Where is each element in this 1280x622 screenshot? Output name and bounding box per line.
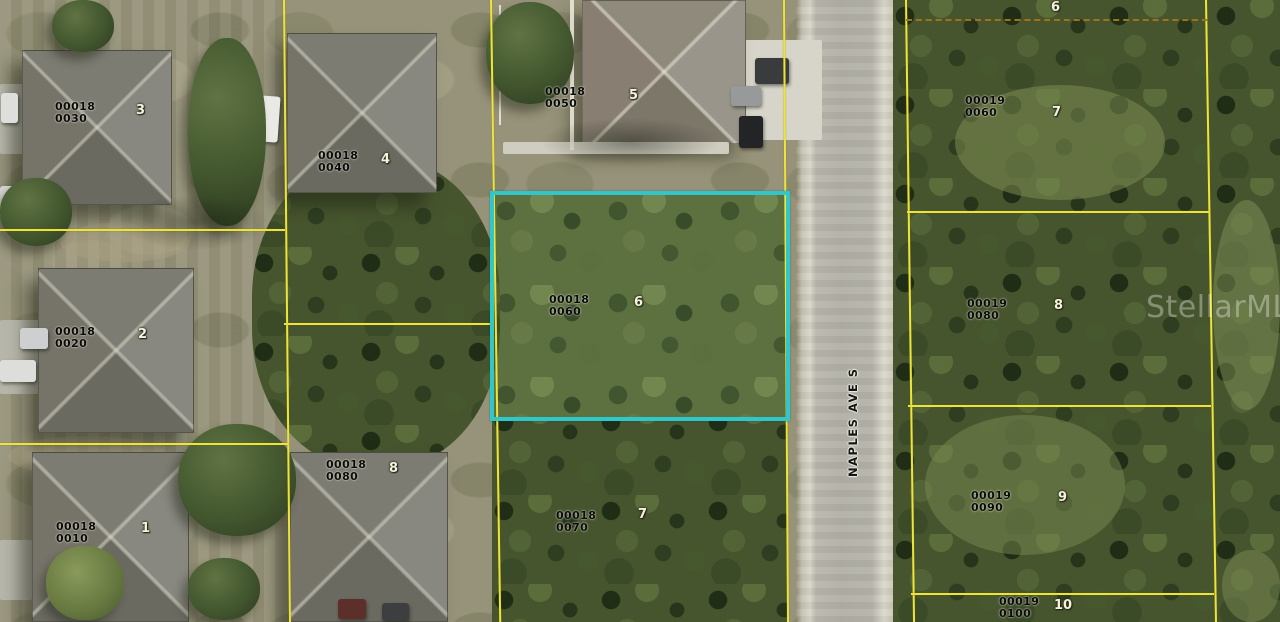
street-name-label: NAPLES AVE S xyxy=(846,371,860,477)
tree-canopy xyxy=(0,178,72,246)
lot-number-7: 7 xyxy=(638,508,647,522)
lot-number-3: 3 xyxy=(136,104,145,118)
parcel-line-dashed xyxy=(906,19,1208,21)
car xyxy=(1,93,18,123)
parcel-line-horizontal xyxy=(911,593,1214,595)
parcel-label-00019-0090: 000190090 xyxy=(971,490,1011,514)
lot-number-8: 8 xyxy=(389,462,398,476)
lot-number-6-highlighted: 6 xyxy=(634,296,643,310)
car xyxy=(338,599,366,619)
parcel-label-00019-0080: 000190080 xyxy=(967,298,1007,322)
tree-shadow xyxy=(120,195,270,250)
parcel-label-00018-0080: 000180080 xyxy=(326,459,366,483)
parcel-label-line2: 0070 xyxy=(556,521,588,534)
driveway-lot1 xyxy=(0,540,32,600)
lot-number-7-east: 7 xyxy=(1052,106,1061,120)
parcel-line-horizontal xyxy=(284,323,492,325)
parcel-label-line2: 0040 xyxy=(318,161,350,174)
light-canopy-patch xyxy=(1222,550,1280,622)
parcel-label-00018-0070: 000180070 xyxy=(556,510,596,534)
lot-number-5: 5 xyxy=(629,89,638,103)
aerial-map: 000180030 000180040 000180050 000180060 … xyxy=(0,0,1280,622)
parcel-label-line2: 0060 xyxy=(549,305,581,318)
parcel-label-00018-0020: 000180020 xyxy=(55,326,95,350)
lot-number-10-east: 10 xyxy=(1054,599,1072,613)
parcel-label-00018-0030: 000180030 xyxy=(55,101,95,125)
parcel-line-horizontal xyxy=(908,405,1211,407)
parcel-label-line2: 0090 xyxy=(971,501,1003,514)
lot-number-9-east: 9 xyxy=(1058,491,1067,505)
parcel-label-00019-0100: 000190100 xyxy=(999,596,1039,620)
parcel-label-00018-0040: 000180040 xyxy=(318,150,358,174)
parcel-line-horizontal xyxy=(907,211,1209,213)
parcel-label-line2: 0020 xyxy=(55,337,87,350)
tree-canopy xyxy=(52,0,114,52)
parcel-label-line2: 0050 xyxy=(545,97,577,110)
tree-cluster-center xyxy=(252,158,500,468)
watermark: StellarMLS xyxy=(1146,290,1280,325)
lot-number-6-east: 6 xyxy=(1051,1,1060,15)
parcel-label-line2: 0030 xyxy=(55,112,87,125)
house-roof-lot4 xyxy=(287,33,437,193)
parcel-label-line2: 0080 xyxy=(967,309,999,322)
light-canopy-patch xyxy=(925,415,1125,555)
car xyxy=(739,116,763,148)
parcel-label-00018-0060: 000180060 xyxy=(549,294,589,318)
lot-number-8-east: 8 xyxy=(1054,299,1063,313)
parcel-label-00018-0050: 000180050 xyxy=(545,86,585,110)
parcel-line-horizontal xyxy=(0,443,288,445)
parcel-label-line2: 0100 xyxy=(999,607,1031,620)
tree-shadow xyxy=(540,118,720,166)
car xyxy=(731,86,761,106)
lot-number-2: 2 xyxy=(138,328,147,342)
car xyxy=(20,328,48,349)
lot-number-4: 4 xyxy=(381,153,390,167)
parcel-line-horizontal xyxy=(0,229,285,231)
parcel-label-line2: 0060 xyxy=(965,106,997,119)
car xyxy=(0,360,36,382)
parcel-label-line2: 0080 xyxy=(326,470,358,483)
house-roof-lot8 xyxy=(290,452,448,622)
tree-canopy xyxy=(178,424,296,536)
parcel-label-00019-0060: 000190060 xyxy=(965,95,1005,119)
tree-canopy xyxy=(188,558,260,620)
parcel-label-00018-0010: 000180010 xyxy=(56,521,96,545)
parcel-label-line2: 0010 xyxy=(56,532,88,545)
car xyxy=(382,603,409,621)
palm-tree-canopy xyxy=(46,546,124,620)
lot-number-1: 1 xyxy=(141,522,150,536)
house-roof-lot2 xyxy=(38,268,194,433)
